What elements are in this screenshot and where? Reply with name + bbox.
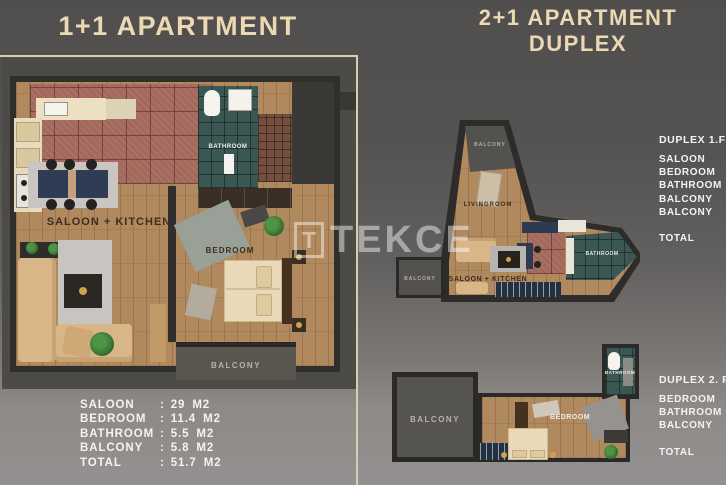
area-row-separator: : bbox=[160, 398, 165, 412]
duplex-floor2-table-total: TOTAL bbox=[659, 446, 726, 459]
area-row-value: 5.8 bbox=[171, 441, 190, 455]
top-divider-line bbox=[0, 55, 358, 57]
area-row-separator: : bbox=[160, 427, 165, 441]
floor2-balcony-label: BALCONY bbox=[397, 415, 473, 424]
floor2-bathroom-label: BATHROOM bbox=[600, 370, 640, 375]
area-row-label: SALOON bbox=[80, 398, 160, 412]
duplex-floor1-table-rows: SALOON BEDROOM BATHROOM BALCONY BALCONY bbox=[659, 153, 726, 219]
plant bbox=[26, 242, 38, 254]
left-plan-title: 1+1 APARTMENT bbox=[0, 11, 356, 42]
floor2-desk bbox=[604, 430, 628, 443]
area-row-unit: M2 bbox=[196, 441, 214, 455]
duplex-floor1-table-row: BALCONY bbox=[659, 193, 726, 206]
watermark: T TEKCE bbox=[294, 221, 474, 259]
toilet bbox=[204, 90, 220, 116]
shower bbox=[228, 89, 252, 111]
area-row-value: 29 bbox=[171, 398, 186, 412]
wall-recess bbox=[292, 82, 334, 184]
area-row: BEDROOM : 11.4 M2 bbox=[80, 412, 222, 426]
duplex-floor2-plan: BALCONY BATHROOM BEDROOM bbox=[390, 340, 640, 465]
duplex-floor1-table-total: TOTAL bbox=[659, 232, 726, 245]
pillow bbox=[256, 294, 272, 316]
area-row-label: BEDROOM bbox=[80, 412, 160, 426]
area-row-label: BATHROOM bbox=[80, 427, 160, 441]
floor2-lamp bbox=[550, 452, 556, 458]
floorplan-poster: 1+1 APARTMENT 2+1 APARTMENT DUPLEX bbox=[0, 0, 726, 485]
duplex-floor2-table-row: BATHROOM bbox=[659, 406, 726, 419]
floor1-counter-white bbox=[558, 220, 586, 232]
livingroom-label: LIVINGROOM bbox=[458, 202, 518, 208]
duplex-floor1-plan: BALCONY LIVINGROOM BATHROOM SALOON + KIT… bbox=[390, 110, 640, 305]
balcony: BALCONY bbox=[176, 342, 296, 380]
dining-chair bbox=[86, 159, 97, 170]
area-row-unit: M2 bbox=[204, 456, 222, 470]
tv-unit bbox=[150, 304, 166, 362]
right-plan-title-line2: DUPLEX bbox=[430, 31, 726, 57]
cabinet-unit bbox=[16, 122, 40, 142]
area-row: TOTAL : 51.7 M2 bbox=[80, 456, 222, 470]
duplex-floor1-table-header: DUPLEX 1.FL bbox=[659, 134, 726, 146]
watermark-text: TEKCE bbox=[330, 221, 474, 259]
floor2-bedroom-label: BEDROOM bbox=[540, 414, 600, 421]
area-row-value: 51.7 bbox=[171, 456, 197, 470]
floor2-shelf bbox=[515, 402, 528, 430]
laundry-tile bbox=[258, 114, 292, 182]
burner bbox=[21, 195, 27, 201]
area-row-separator: : bbox=[160, 441, 165, 455]
area-row-unit: M2 bbox=[203, 412, 221, 426]
floor1-top-balcony-label: BALCONY bbox=[468, 142, 512, 148]
bedroom-label: BEDROOM bbox=[194, 246, 266, 255]
area-row-separator: : bbox=[160, 412, 165, 426]
area-row-value: 11.4 bbox=[171, 412, 196, 426]
floor1-table-decor bbox=[506, 257, 511, 262]
plant bbox=[264, 216, 284, 236]
area-row-separator: : bbox=[160, 456, 165, 470]
duplex-floor2-table-rows: BEDROOM BATHROOM BALCONY bbox=[659, 393, 726, 433]
floor1-left-balcony: BALCONY bbox=[396, 257, 444, 298]
balcony-label: BALCONY bbox=[176, 361, 296, 370]
wall-stub bbox=[340, 92, 356, 110]
area-table-1p1: SALOON : 29 M2 BEDROOM : 11.4 M2 BATHROO… bbox=[80, 398, 222, 470]
floor1-chair bbox=[534, 246, 541, 253]
area-row: SALOON : 29 M2 bbox=[80, 398, 222, 412]
dining-table-runner bbox=[68, 170, 76, 198]
floor1-chaise bbox=[456, 282, 488, 294]
area-row-value: 5.5 bbox=[171, 427, 190, 441]
area-row-label: TOTAL bbox=[80, 456, 160, 470]
duplex-floor1-table-row: SALOON bbox=[659, 153, 726, 166]
area-row-unit: M2 bbox=[196, 427, 214, 441]
lamp bbox=[296, 322, 302, 328]
sofa bbox=[18, 258, 56, 362]
duplex-floor1-table-row: BEDROOM bbox=[659, 166, 726, 179]
headboard bbox=[282, 258, 292, 324]
duplex-floor2-table: DUPLEX 2. FL BEDROOM BATHROOM BALCONY TO… bbox=[659, 374, 726, 459]
floor1-stairs bbox=[495, 282, 561, 297]
right-plan-title: 2+1 APARTMENT DUPLEX bbox=[430, 5, 726, 57]
floor1-bathroom-label: BATHROOM bbox=[574, 251, 630, 257]
dining-chair bbox=[64, 159, 75, 170]
duplex-floor1-table: DUPLEX 1.FL SALOON BEDROOM BATHROOM BALC… bbox=[659, 134, 726, 245]
dining-chair bbox=[86, 199, 97, 210]
pillow bbox=[256, 266, 272, 288]
dining-chair bbox=[46, 159, 57, 170]
area-row-label: BALCONY bbox=[80, 441, 160, 455]
partition-wall bbox=[168, 186, 176, 342]
bed bbox=[224, 260, 282, 322]
bathroom-sink bbox=[224, 154, 234, 174]
burner bbox=[21, 180, 27, 186]
floor1-left-balcony-label: BALCONY bbox=[399, 276, 441, 282]
dining-chair bbox=[46, 199, 57, 210]
floor2-pillow bbox=[530, 450, 545, 458]
kitchen-sink bbox=[44, 102, 68, 116]
floor1-chair bbox=[534, 261, 541, 268]
floor1-kitchen-counter bbox=[522, 222, 558, 233]
wardrobe bbox=[198, 188, 292, 208]
duplex-floor2-table-header: DUPLEX 2. FL bbox=[659, 374, 726, 386]
area-row: BATHROOM : 5.5 M2 bbox=[80, 427, 222, 441]
table-decor bbox=[79, 287, 87, 295]
duplex-floor1-table-row: BALCONY bbox=[659, 206, 726, 219]
floor2-pillow bbox=[512, 450, 527, 458]
vertical-divider-line bbox=[356, 55, 358, 485]
duplex-floor2-table-row: BALCONY bbox=[659, 419, 726, 432]
floor2-lamp bbox=[501, 452, 507, 458]
tekce-logo-icon: T bbox=[294, 222, 324, 258]
bed-blanket-line bbox=[226, 288, 280, 290]
dining-chair bbox=[64, 199, 75, 210]
floor2-toilet bbox=[608, 352, 620, 370]
floor2-balcony: BALCONY bbox=[392, 372, 478, 462]
bathroom-label: BATHROOM bbox=[198, 144, 258, 150]
plant bbox=[90, 332, 114, 356]
right-plan-title-line1: 2+1 APARTMENT bbox=[430, 5, 726, 31]
counter-extension bbox=[106, 99, 136, 119]
duplex-floor2-table-row: BEDROOM bbox=[659, 393, 726, 406]
duplex-floor1-table-row: BATHROOM bbox=[659, 179, 726, 192]
floor2-plant bbox=[604, 445, 618, 459]
area-row: BALCONY : 5.8 M2 bbox=[80, 441, 222, 455]
floor1-bathroom-door bbox=[566, 238, 574, 274]
area-row-unit: M2 bbox=[192, 398, 210, 412]
